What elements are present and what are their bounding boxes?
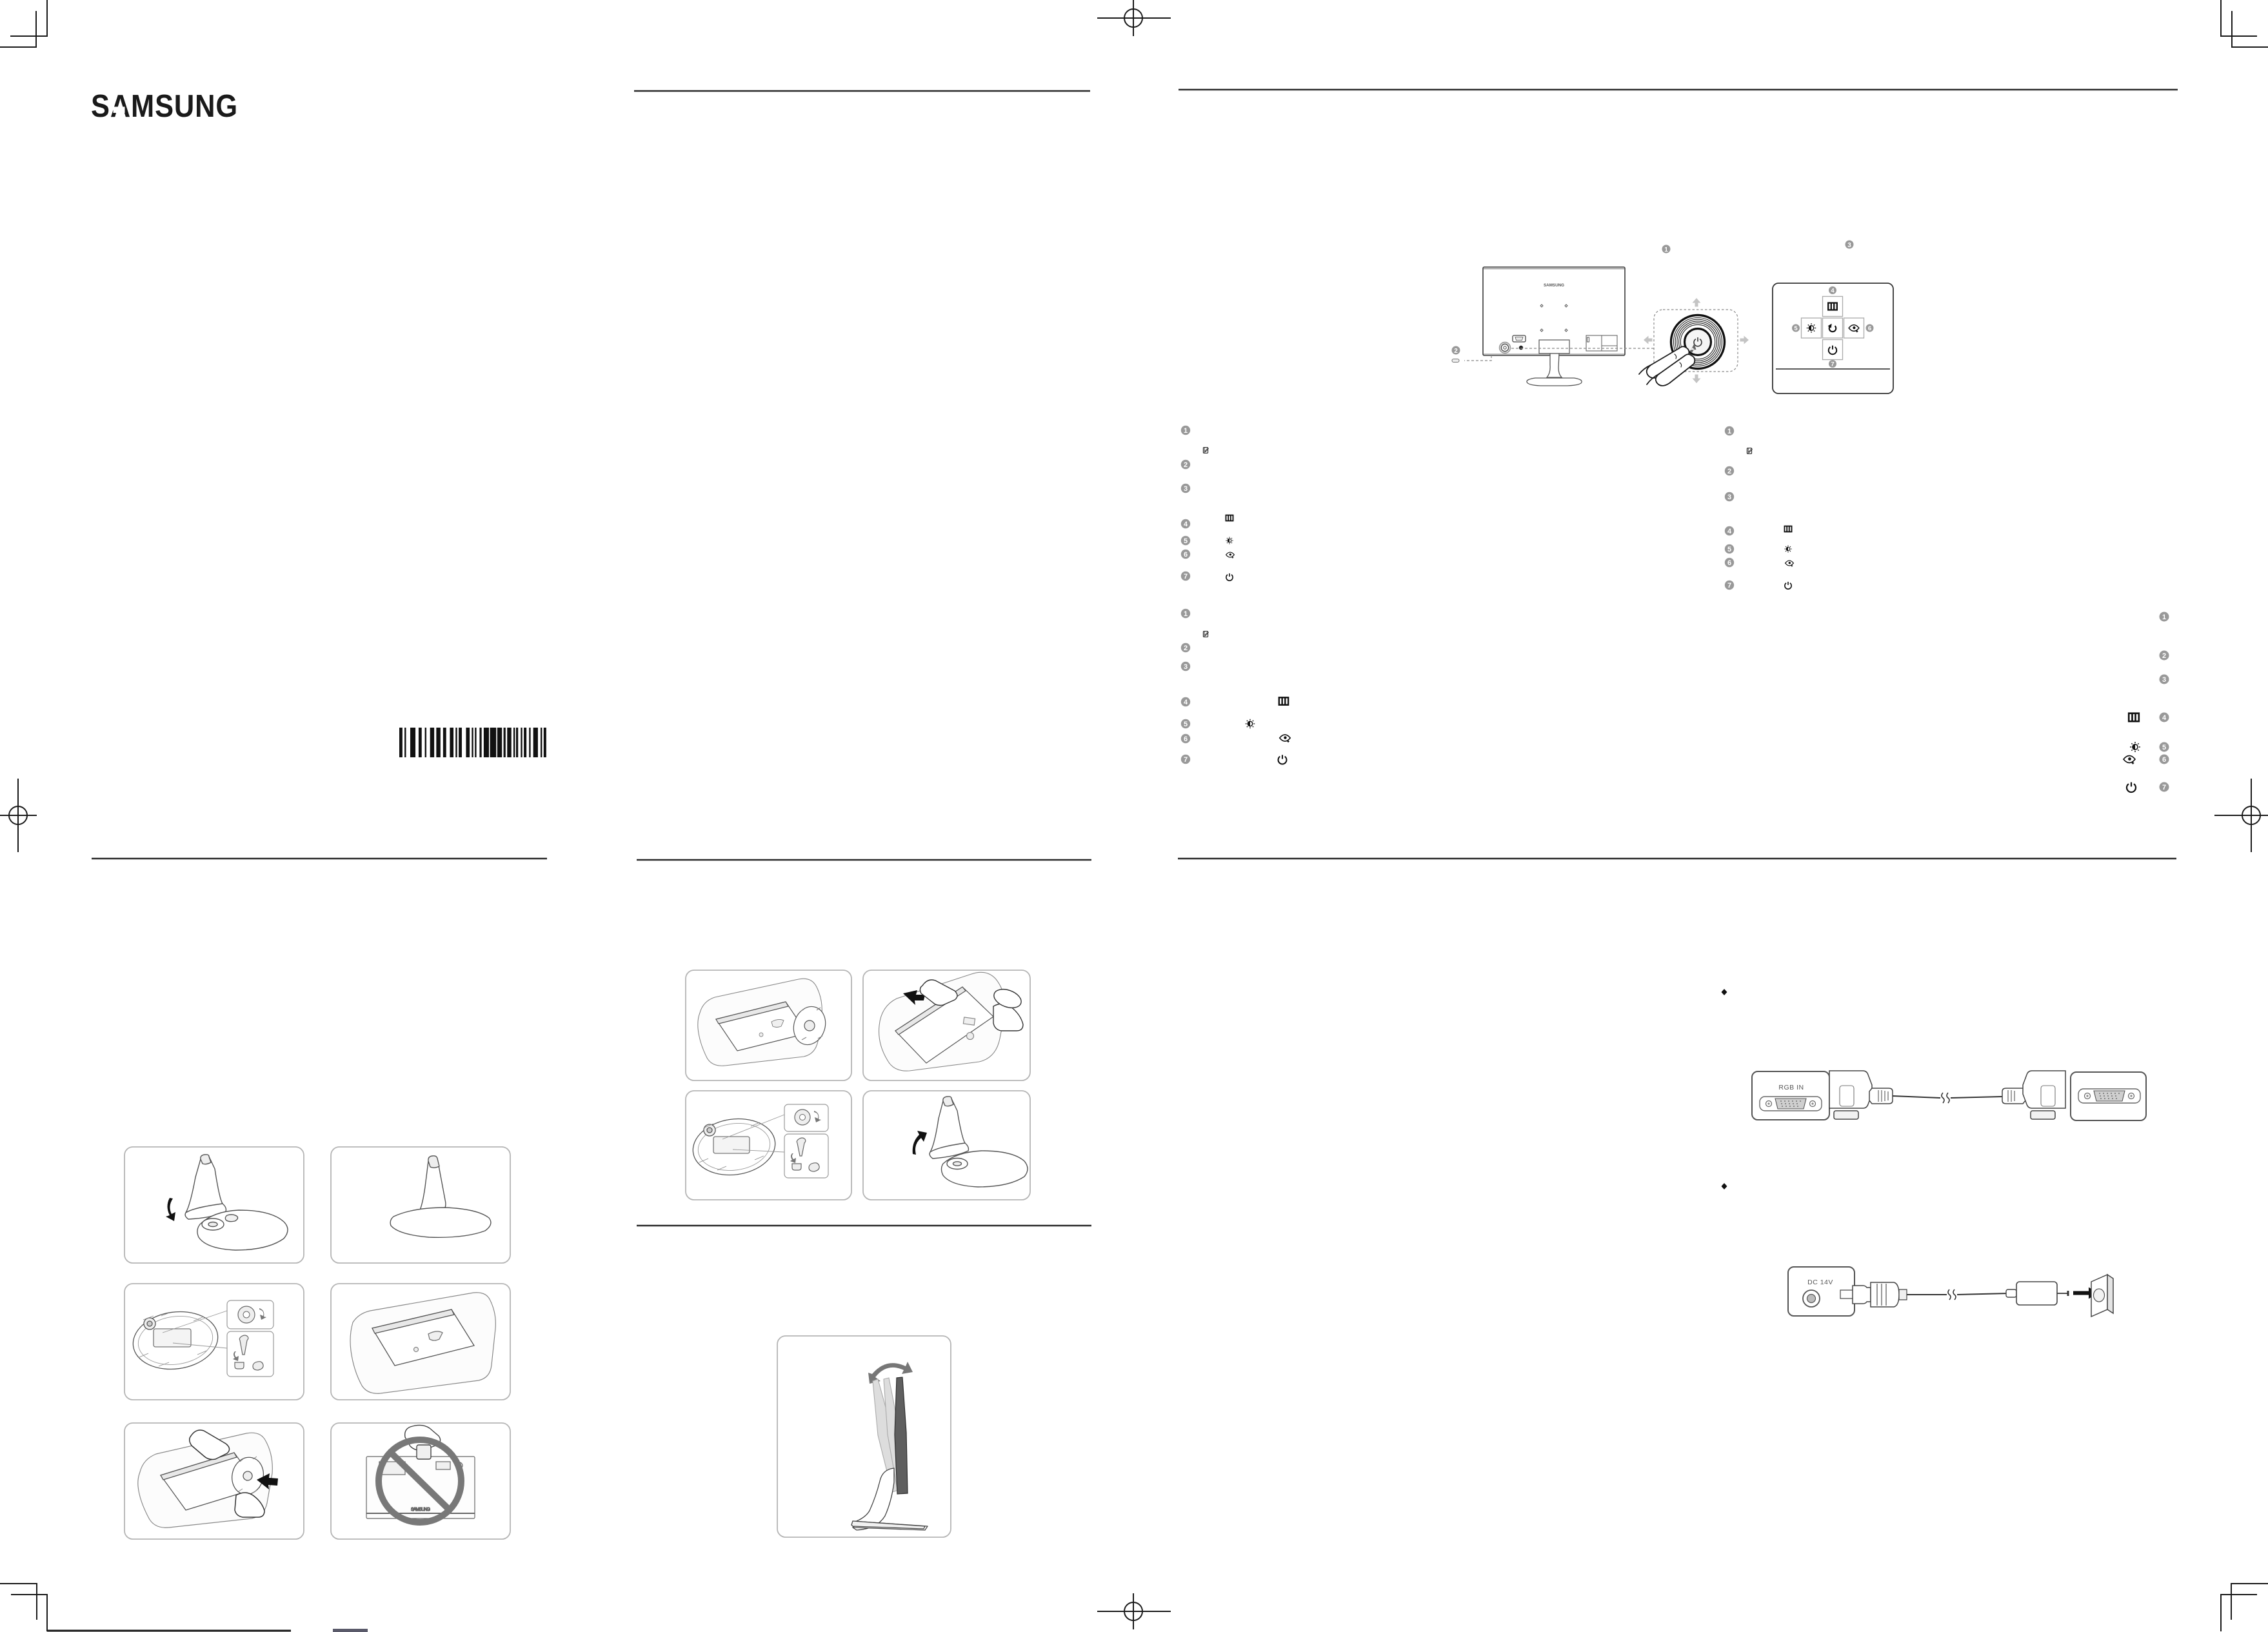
svg-text:1: 1 [1184, 610, 1188, 618]
svg-text:3: 3 [1184, 663, 1188, 671]
svg-text:4: 4 [1184, 521, 1188, 528]
svg-text:3: 3 [1184, 485, 1188, 493]
svg-text:1: 1 [1727, 428, 1731, 435]
svg-text:5: 5 [2162, 744, 2166, 751]
svg-text:6: 6 [1727, 559, 1731, 567]
svg-text:5: 5 [1184, 537, 1188, 545]
svg-text:5: 5 [1794, 325, 1798, 332]
svg-text:7: 7 [1184, 756, 1188, 764]
svg-text:7: 7 [1831, 361, 1834, 368]
svg-text:DC 14V: DC 14V [1807, 1279, 1833, 1286]
svg-text:2: 2 [1184, 644, 1188, 652]
svg-text:6: 6 [2162, 756, 2166, 764]
svg-text:1: 1 [2162, 613, 2166, 621]
svg-text:7: 7 [1727, 582, 1731, 590]
svg-text:4: 4 [1184, 699, 1188, 706]
svg-text:7: 7 [1184, 573, 1188, 581]
svg-text:4: 4 [1831, 288, 1835, 295]
svg-text:SAMSUNG: SAMSUNG [91, 89, 238, 124]
svg-text:2: 2 [1727, 468, 1731, 475]
svg-text:4: 4 [1727, 528, 1732, 535]
svg-text:3: 3 [2162, 676, 2166, 684]
svg-text:6: 6 [1184, 735, 1188, 743]
svg-text:3: 3 [1727, 493, 1731, 501]
svg-text:4: 4 [2162, 714, 2167, 722]
svg-text:6: 6 [1868, 325, 1871, 332]
svg-text:3: 3 [1847, 242, 1851, 249]
svg-text:RGB IN: RGB IN [1778, 1084, 1804, 1091]
svg-text:2: 2 [2162, 652, 2166, 660]
svg-text:5: 5 [1184, 721, 1188, 728]
svg-text:SAMSUNG: SAMSUNG [1544, 284, 1564, 288]
svg-text:6: 6 [1184, 551, 1188, 559]
svg-text:2: 2 [1454, 348, 1458, 355]
svg-text:2: 2 [1184, 461, 1188, 469]
svg-text:SAMSUNG: SAMSUNG [411, 1508, 430, 1512]
svg-text:5: 5 [1727, 546, 1731, 553]
svg-text:7: 7 [2162, 784, 2166, 791]
svg-text:1: 1 [1184, 427, 1188, 435]
svg-text:1: 1 [1664, 246, 1668, 254]
